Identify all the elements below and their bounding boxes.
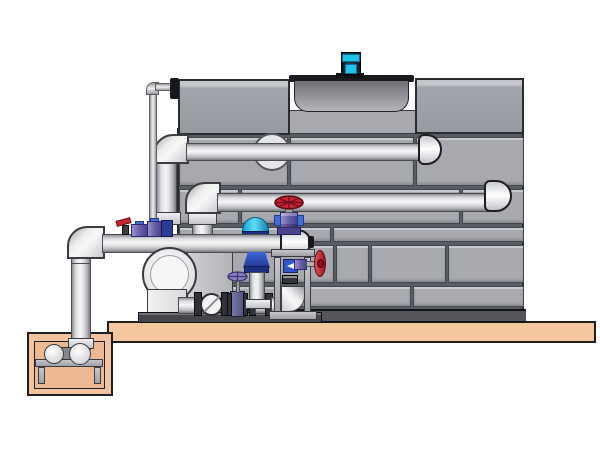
meter-register	[282, 275, 298, 284]
globe-valve-gland	[297, 215, 304, 226]
meter-stand-top	[271, 249, 315, 257]
fan-motor-cap	[342, 54, 360, 62]
control-valve-base-flange	[245, 299, 271, 309]
globe-valve-handwheel	[274, 195, 304, 210]
makeup-line-tower-flange	[170, 78, 179, 99]
tower-upper-box-left	[178, 79, 290, 135]
makeup-valve-block	[161, 220, 173, 237]
mini-valve	[131, 224, 148, 237]
tower-return-pipe-lower	[217, 193, 489, 212]
discharge-elbow	[185, 182, 221, 214]
diagram-stage	[0, 0, 600, 450]
platform-slab	[107, 321, 596, 343]
sump-pump-body-end	[69, 343, 91, 365]
tower-panel	[333, 227, 524, 242]
tower-panel	[413, 286, 524, 307]
tower-upper-box-right	[415, 78, 524, 134]
discharge-riser-flange	[188, 213, 217, 225]
header-end-plug	[308, 236, 314, 248]
globe-valve-gland	[274, 215, 281, 226]
tower-panel	[336, 245, 369, 283]
return-riser-elbow	[153, 134, 189, 164]
fan-cowl	[294, 81, 409, 112]
sump-stand-leg	[38, 367, 45, 384]
tower-panel	[448, 245, 524, 283]
tower-top-band	[288, 110, 417, 134]
gate-valve-flange	[227, 293, 232, 316]
meter-stand-post	[274, 257, 281, 313]
tower-return-pipe-upper	[186, 143, 424, 161]
check-valve	[200, 293, 223, 316]
fan-motor-window	[345, 64, 357, 74]
makeup-line-vertical	[149, 90, 157, 222]
tower-panel	[371, 245, 446, 283]
control-valve-drop-pipe	[249, 272, 265, 302]
suction-riser-pipe	[71, 253, 91, 350]
globe-valve-body	[280, 212, 298, 228]
mini-valve	[147, 221, 162, 237]
globe-valve-flange	[277, 227, 301, 235]
suction-header-elbow	[67, 226, 105, 259]
sump-stand-leg	[94, 367, 101, 384]
side-valve-hub-cap	[317, 259, 324, 268]
drain-lever-valve-body	[122, 225, 129, 235]
sump-pump-motor-end	[44, 344, 64, 364]
meter-stand-base	[269, 311, 317, 320]
